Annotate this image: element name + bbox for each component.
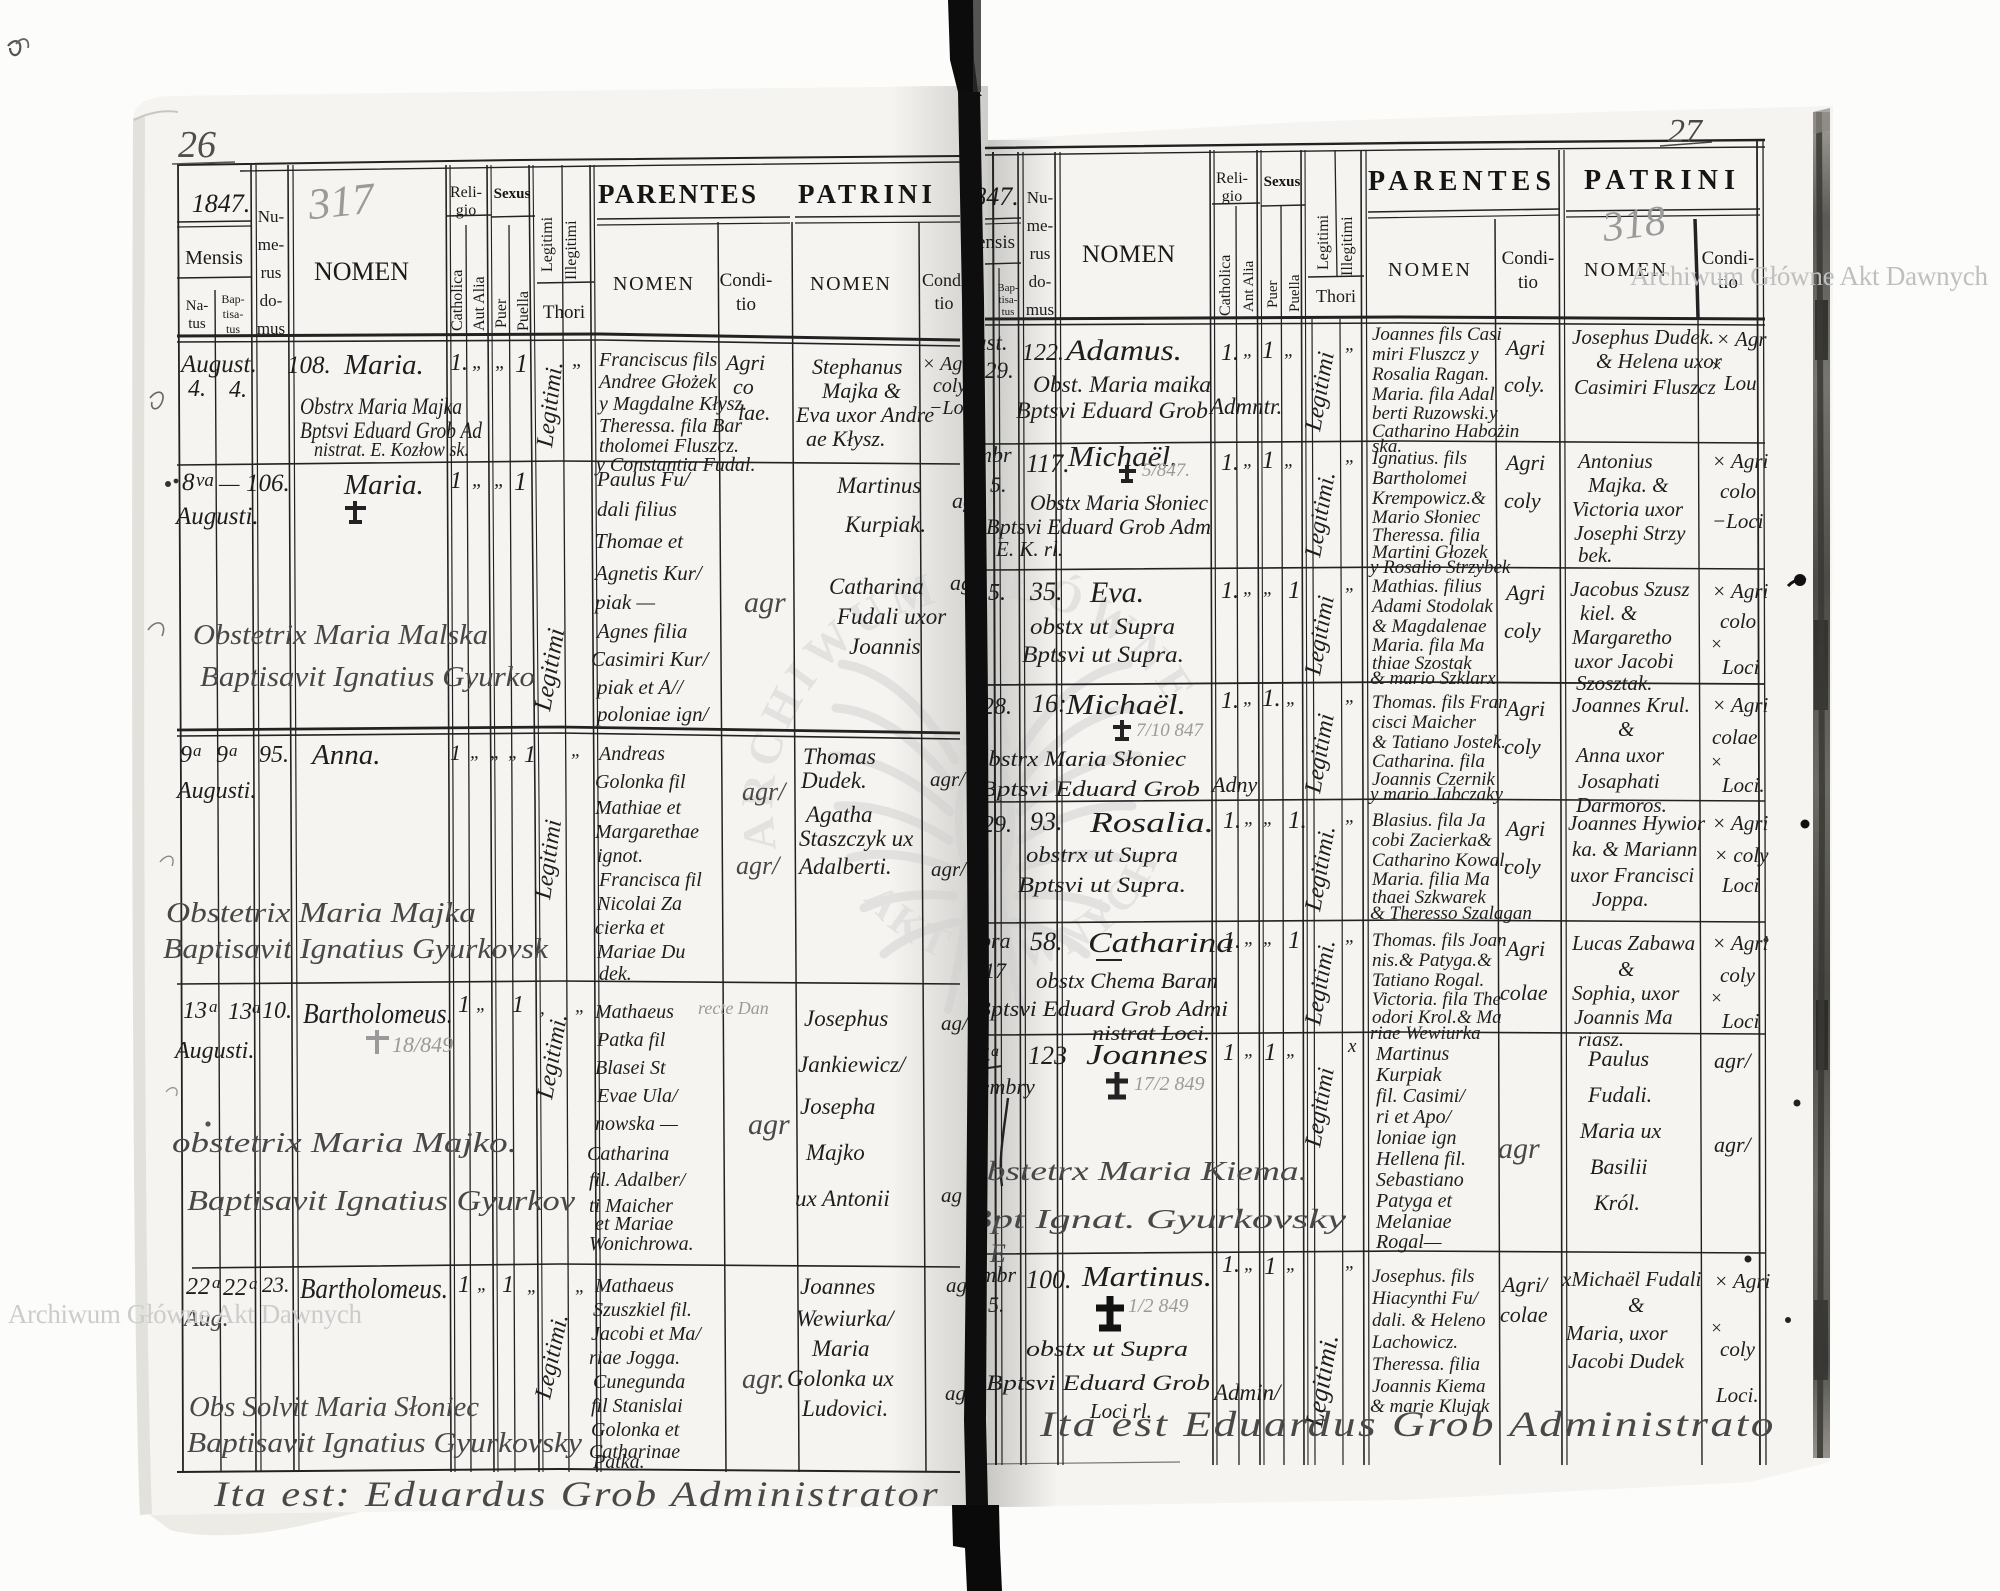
svg-text:„: „ [1244, 928, 1255, 949]
svg-text:4.: 4. [229, 377, 247, 403]
svg-text:„: „ [1286, 688, 1297, 709]
svg-text:Maria.: Maria. [343, 469, 424, 501]
svg-text:1: 1 [1264, 1039, 1277, 1066]
svg-text:a: a [229, 741, 238, 760]
svg-text:Agri: Agri [1504, 335, 1545, 360]
svg-text:„: „ [1263, 928, 1274, 949]
svg-text:Sexus: Sexus [1264, 174, 1301, 190]
svg-text:August.: August. [179, 351, 257, 378]
svg-text:Maria.: Maria. [343, 349, 424, 381]
svg-text:Obstx Maria Słoniec: Obstx Maria Słoniec [1030, 490, 1208, 515]
svg-text:agr: agr [748, 1108, 790, 1141]
svg-text:22: 22 [186, 1274, 210, 1300]
svg-text:obstx Chema Baran: obstx Chema Baran [1036, 968, 1218, 993]
svg-text:agr/: agr/ [736, 851, 782, 880]
svg-text:Bptsvi Eduard Grob: Bptsvi Eduard Grob [986, 1370, 1210, 1395]
svg-text:Martinus.: Martinus. [1081, 1261, 1212, 1293]
svg-text:agr.: agr. [742, 1364, 785, 1395]
svg-text:„: „ [1286, 1254, 1297, 1275]
svg-text:× coly: × coly [1714, 843, 1769, 867]
svg-text:Bptsvi Eduard Grob: Bptsvi Eduard Grob [980, 776, 1200, 801]
svg-text:„: „ [472, 351, 483, 373]
svg-text:„: „ [1263, 808, 1274, 829]
svg-text:58.: 58. [1030, 927, 1063, 956]
svg-text:„: „ [470, 742, 481, 763]
svg-text:„: „ [494, 469, 505, 491]
svg-text:1: 1 [1288, 927, 1301, 954]
svg-text:coly: coly [1504, 488, 1541, 513]
svg-text:Obst. Maria maika: Obst. Maria maika [1033, 372, 1211, 397]
svg-text:obstetrx Maria Kiema.: obstetrx Maria Kiema. [968, 1156, 1308, 1186]
svg-text:NOMEN: NOMEN [810, 273, 896, 295]
svg-text:NOMEN: NOMEN [314, 257, 418, 286]
svg-text:NOMEN: NOMEN [613, 273, 699, 295]
svg-text:Loci: Loci [1721, 655, 1760, 679]
svg-text:Catholica: Catholica [449, 270, 466, 331]
svg-text:108.: 108. [287, 352, 331, 379]
svg-text:Legitimi: Legitimi [539, 216, 556, 272]
svg-text:„: „ [527, 1276, 538, 1297]
svg-text:×: × [1710, 988, 1723, 1009]
svg-text:„: „ [472, 469, 483, 491]
svg-text:Adny: Adny [1210, 772, 1257, 797]
svg-text:1.: 1. [450, 350, 468, 376]
svg-text:rus: rus [261, 263, 282, 282]
svg-text:do-: do- [1029, 272, 1052, 291]
svg-text:26: 26 [178, 124, 216, 166]
svg-text:„: „ [1263, 578, 1274, 599]
svg-text:93.: 93. [1030, 807, 1063, 836]
svg-text:obstrx Maria Słoniec: obstrx Maria Słoniec [976, 746, 1186, 771]
svg-text:13: 13 [183, 998, 207, 1024]
svg-text:colae: colae [1500, 980, 1548, 1005]
svg-text:× Agri: × Agri [1712, 693, 1769, 717]
svg-text:PARENTES: PARENTES [1368, 166, 1558, 197]
svg-text:tio: tio [1518, 272, 1538, 293]
svg-text:„: „ [1243, 578, 1254, 599]
svg-text:coly: coly [1504, 734, 1541, 759]
svg-text:tus: tus [1002, 306, 1015, 318]
svg-text:4.: 4. [188, 376, 206, 402]
svg-text:x: x [1347, 1036, 1357, 1057]
svg-text:a: a [209, 997, 218, 1016]
svg-text:1.: 1. [1221, 340, 1239, 366]
svg-text:Eva.: Eva. [1089, 576, 1144, 609]
svg-text:Agri: Agri [1504, 580, 1545, 605]
svg-text:coly.: coly. [1504, 372, 1545, 397]
svg-text:9: 9 [216, 742, 228, 768]
svg-text:a: a [212, 1273, 221, 1292]
svg-text:Archiwum Główne Akt Dawnych: Archiwum Główne Akt Dawnych [8, 1299, 363, 1329]
svg-text:1: 1 [450, 740, 461, 765]
svg-text:agr/: agr/ [1714, 1132, 1753, 1157]
svg-text:1: 1 [1223, 1040, 1235, 1066]
svg-text:318: 318 [1599, 198, 1668, 251]
svg-text:Bptsvi ut Supra.: Bptsvi ut Supra. [1018, 872, 1186, 897]
svg-text:agr: agr [1498, 1132, 1540, 1165]
svg-text:„: „ [1345, 926, 1356, 947]
svg-text:tus: tus [226, 322, 240, 336]
svg-text:1: 1 [1262, 447, 1275, 474]
svg-text:ag/: ag/ [941, 1011, 970, 1035]
svg-text:1: 1 [524, 742, 536, 768]
svg-text:Archiwum Główne Akt Dawnych: Archiwum Główne Akt Dawnych [1630, 261, 1989, 291]
svg-text:×: × [1710, 356, 1723, 377]
svg-text:1: 1 [514, 467, 527, 496]
svg-text:Michaël.: Michaël. [1065, 689, 1186, 721]
svg-text:colo: colo [1720, 479, 1756, 503]
svg-text:16:: 16: [1032, 689, 1067, 718]
svg-text:9: 9 [180, 742, 192, 768]
svg-text:Augusti.: Augusti. [175, 778, 256, 804]
svg-text:Aut Alia: Aut Alia [471, 276, 488, 331]
svg-text:„: „ [1345, 446, 1356, 467]
svg-text:×: × [1710, 1318, 1723, 1339]
svg-text:coly: coly [1504, 854, 1541, 879]
svg-text:Catholica: Catholica [1217, 255, 1234, 316]
svg-text:tisa-: tisa- [999, 294, 1018, 306]
svg-text:1.: 1. [1223, 928, 1241, 954]
svg-text:recte Dan: recte Dan [698, 998, 769, 1018]
svg-text:Condi-: Condi- [720, 270, 773, 291]
svg-text:5/847.: 5/847. [1142, 460, 1190, 481]
svg-text:Legitimi: Legitimi [1315, 214, 1332, 270]
svg-text:1847.: 1847. [192, 189, 251, 218]
svg-text:mus: mus [1026, 300, 1054, 319]
svg-text:1: 1 [458, 992, 470, 1018]
svg-text:Augusti.: Augusti. [173, 1038, 254, 1064]
svg-text:× Agri: × Agri [1714, 1269, 1771, 1293]
svg-text:PATRINI: PATRINI [1584, 165, 1742, 196]
svg-text:Baptisavit Ignatius Gyurkov: Baptisavit Ignatius Gyurkov [187, 1186, 576, 1217]
svg-text:colae: colae [1500, 1302, 1548, 1327]
svg-text:1: 1 [458, 1272, 470, 1298]
svg-text:„: „ [1345, 806, 1356, 827]
svg-text:× Agri: × Agri [1712, 811, 1769, 835]
svg-text:22: 22 [223, 1275, 247, 1301]
svg-text:„: „ [575, 996, 586, 1017]
svg-text:tisa-: tisa- [223, 307, 244, 321]
svg-text:Baptisavit Ignatius Gyurkovsk: Baptisavit Ignatius Gyurkovsk [163, 934, 549, 965]
svg-text:8: 8 [182, 469, 195, 496]
svg-text:Loci: Loci [1721, 1009, 1760, 1033]
svg-text:Agri: Agri [1504, 816, 1545, 841]
svg-text:Ita est: Eduardus Grob Adm: Ita est: Eduardus Grob Administrator [213, 1474, 940, 1514]
svg-text:agr/: agr/ [931, 857, 968, 881]
svg-text:NOMEN: NOMEN [1388, 259, 1476, 281]
svg-text:Joannes: Joannes [1086, 1039, 1208, 1071]
svg-text:Puella: Puella [515, 291, 532, 331]
svg-text:tio: tio [934, 293, 953, 313]
svg-text:agr/: agr/ [1714, 1048, 1753, 1073]
svg-text:tus: tus [188, 316, 206, 332]
svg-text:colae: colae [1712, 725, 1757, 749]
svg-text:gio: gio [1222, 188, 1242, 205]
svg-text:Anna.: Anna. [310, 739, 380, 771]
svg-text:„: „ [1284, 450, 1295, 471]
svg-text:Condi-: Condi- [1502, 248, 1555, 269]
svg-text:va: va [196, 470, 214, 491]
svg-text:„: „ [571, 740, 582, 761]
svg-text:Condi: Condi [922, 270, 966, 290]
svg-text:„: „ [1244, 808, 1255, 829]
svg-text:1/2 849: 1/2 849 [1128, 1295, 1189, 1317]
svg-text:Ita est Eduardus Grob Ad: Ita est Eduardus Grob Administrato [1039, 1404, 1776, 1444]
svg-text:1.: 1. [1221, 688, 1239, 714]
svg-text:Agri: Agri [1504, 450, 1545, 475]
svg-text:× Agr: × Agr [1716, 327, 1767, 351]
svg-text:Loci.: Loci. [1721, 773, 1765, 797]
svg-text:coly: coly [1504, 618, 1541, 643]
svg-text:Bartholomeus.: Bartholomeus. [303, 999, 453, 1030]
svg-text:Augusti.: Augusti. [174, 503, 259, 530]
svg-text:Bap-: Bap- [997, 282, 1019, 294]
svg-text:„: „ [575, 1276, 586, 1297]
svg-text:×: × [1710, 634, 1723, 655]
svg-text:„: „ [1345, 574, 1356, 595]
svg-text:Bptsvi ut Supra.: Bptsvi ut Supra. [1022, 642, 1184, 667]
svg-text:obstx ut Supra: obstx ut Supra [1026, 1336, 1188, 1361]
svg-text:Obstetrix Maria Malska: Obstetrix Maria Malska [193, 619, 488, 651]
svg-text:„: „ [1345, 686, 1356, 707]
svg-text:Loci: Loci [1721, 873, 1760, 897]
svg-text:„: „ [1345, 334, 1356, 355]
svg-text:1.: 1. [1221, 450, 1239, 476]
svg-text:1.: 1. [1288, 807, 1307, 834]
svg-text:„: „ [1244, 1040, 1255, 1061]
svg-text:obstx ut Supra: obstx ut Supra [1030, 614, 1175, 639]
svg-text:Agri/: Agri/ [1500, 1272, 1549, 1297]
svg-text:me-: me- [1027, 216, 1054, 235]
svg-text:1.: 1. [1222, 1252, 1240, 1278]
svg-text:obstetrix Maria Majko.: obstetrix Maria Majko. [172, 1128, 517, 1159]
svg-text:1: 1 [1288, 577, 1301, 604]
svg-text:Baptisavit Ignatius Gyurko: Baptisavit Ignatius Gyurko [200, 661, 535, 693]
svg-text:PATRINI: PATRINI [798, 179, 938, 209]
svg-text:Agri: Agri [1504, 696, 1545, 721]
svg-text:„: „ [508, 742, 519, 763]
svg-text:17/2 849: 17/2 849 [1134, 1073, 1205, 1095]
svg-text:Mensis: Mensis [185, 247, 243, 269]
svg-text:do-: do- [260, 291, 283, 310]
svg-text:„: „ [572, 349, 583, 371]
svg-text:95.: 95. [259, 742, 289, 768]
svg-text:Thori: Thori [1316, 286, 1356, 306]
svg-text:100.: 100. [1026, 1265, 1072, 1294]
svg-text:29.: 29. [985, 358, 1014, 383]
svg-text:1: 1 [515, 349, 528, 378]
svg-text:1: 1 [1264, 1253, 1277, 1280]
svg-text:„: „ [1286, 1040, 1297, 1061]
svg-text:a: a [193, 741, 202, 760]
svg-text:Obs Solvit Maria Słoniec: Obs Solvit Maria Słoniec [189, 1392, 480, 1423]
svg-text:Obstrx Maria Majka: Obstrx Maria Majka [300, 394, 462, 419]
svg-text:1.: 1. [1221, 578, 1239, 604]
svg-text:tio: tio [736, 294, 756, 315]
svg-text:18/849: 18/849 [392, 1032, 453, 1057]
svg-text:NOMEN: NOMEN [1082, 241, 1184, 268]
svg-text:„: „ [477, 1274, 488, 1295]
svg-text:Sexus: Sexus [494, 186, 531, 202]
svg-text:Nu-: Nu- [258, 207, 285, 226]
svg-text:Thori: Thori [543, 302, 585, 323]
svg-text:Mathias. filiusAdami Stodolak&: Mathias. filiusAdami Stodolak& Magdalena… [1370, 576, 1496, 689]
svg-text:117.: 117. [1026, 449, 1070, 478]
svg-text:„: „ [1345, 1252, 1356, 1273]
svg-text:nistrat. E. Kozłow sk.: nistrat. E. Kozłow sk. [314, 439, 469, 461]
svg-text:„: „ [1244, 1254, 1255, 1275]
svg-text:—: — [218, 471, 240, 496]
svg-text:coly: coly [1720, 1337, 1756, 1361]
svg-text:1: 1 [450, 468, 462, 494]
svg-text:Ant Alia: Ant Alia [1241, 260, 1257, 312]
svg-text:Bptsvi Eduard Grob Admi: Bptsvi Eduard Grob Admi [976, 996, 1228, 1021]
svg-text:Na-: Na- [186, 298, 209, 314]
svg-text:PARENTES: PARENTES [598, 179, 762, 209]
svg-text:„: „ [1284, 340, 1295, 361]
svg-text:Admntr.: Admntr. [1208, 394, 1282, 419]
svg-text:Obstetrix Maria Majka: Obstetrix Maria Majka [166, 898, 476, 929]
svg-text:Baptisavit Ignatius Gyurkovsky: Baptisavit Ignatius Gyurkovsky [187, 1428, 583, 1459]
svg-text:Thomas. fils Francisci Maicher: Thomas. fils Francisci Maicher& Tatiano … [1368, 692, 1508, 805]
svg-text:1: 1 [512, 992, 524, 1018]
svg-text:Bptsvi Eduard Grob Adm: Bptsvi Eduard Grob Adm [986, 514, 1211, 539]
svg-text:Bap-: Bap- [221, 292, 244, 306]
svg-text:×: × [1710, 752, 1723, 773]
svg-text:Agri: Agri [1504, 936, 1545, 961]
svg-text:1.: 1. [1223, 808, 1241, 834]
svg-text:colo: colo [1720, 609, 1756, 633]
svg-text:Illegitimi: Illegitimi [563, 220, 580, 280]
svg-text:Puer: Puer [1265, 281, 1281, 309]
svg-text:Bpt Ignat. Gyurkovsky: Bpt Ignat. Gyurkovsky [966, 1204, 1346, 1234]
svg-text:35.: 35. [1029, 577, 1063, 606]
svg-text:Admin/: Admin/ [1212, 1380, 1283, 1405]
svg-text:rus: rus [1030, 244, 1051, 263]
svg-text:13: 13 [228, 999, 252, 1025]
svg-text:Lou: Lou [1723, 371, 1757, 395]
svg-text:„: „ [1243, 450, 1254, 471]
svg-text:,: , [540, 998, 545, 1019]
svg-text:ag: ag [941, 1183, 962, 1207]
svg-text:„: „ [490, 742, 501, 763]
svg-text:mus: mus [257, 319, 285, 338]
svg-text:Nu-: Nu- [1027, 188, 1054, 207]
svg-text:7/10 847: 7/10 847 [1136, 720, 1205, 741]
svg-text:Bptsvi Eduard Grob: Bptsvi Eduard Grob [1016, 398, 1208, 423]
svg-text:gio: gio [456, 202, 476, 219]
svg-text:a: a [991, 1043, 999, 1060]
svg-text:Adamus.: Adamus. [1064, 334, 1182, 367]
svg-text:Illegitimi: Illegitimi [1339, 216, 1356, 276]
svg-text:a: a [249, 1274, 258, 1293]
svg-text:„: „ [1243, 340, 1254, 361]
svg-text:Reli-: Reli- [1216, 170, 1248, 187]
svg-text:„: „ [1243, 688, 1254, 709]
svg-text:−Loci: −Loci [1712, 509, 1764, 533]
svg-text:× Agri: × Agri [1712, 931, 1769, 955]
svg-text:122.: 122. [1022, 340, 1064, 366]
svg-text:me-: me- [258, 235, 285, 254]
svg-text:5.: 5. [988, 1292, 1005, 1317]
svg-text:E. K. rl.: E. K. rl. [995, 537, 1063, 561]
svg-text:317: 317 [305, 173, 379, 229]
svg-text:obstrx ut Supra: obstrx ut Supra [1026, 842, 1178, 867]
svg-text:106.: 106. [246, 470, 290, 497]
svg-text:Puella: Puella [1287, 274, 1303, 312]
svg-text:coly: coly [1720, 963, 1756, 987]
svg-text:1: 1 [502, 1272, 514, 1298]
svg-text:a: a [252, 998, 261, 1017]
svg-text:„: „ [495, 351, 506, 373]
svg-text:× Agri: × Agri [1712, 449, 1769, 473]
svg-text:Rosalia.: Rosalia. [1089, 807, 1214, 839]
svg-text:10.: 10. [262, 998, 292, 1024]
svg-text:× Agri: × Agri [1712, 579, 1769, 603]
svg-text:Puer: Puer [493, 298, 510, 328]
svg-text:5.: 5. [990, 472, 1007, 497]
svg-text:agr: agr [744, 586, 786, 619]
svg-text:Catharina: Catharina [1088, 927, 1234, 959]
svg-text:123: 123 [1028, 1041, 1067, 1070]
svg-text:„: „ [476, 994, 487, 1015]
svg-text:1: 1 [1262, 337, 1275, 364]
svg-text:1.: 1. [1262, 685, 1281, 712]
svg-text:23.: 23. [262, 1272, 290, 1297]
svg-text:agr/: agr/ [742, 777, 788, 806]
svg-text:5.: 5. [988, 580, 1006, 606]
svg-text:Reli-: Reli- [450, 184, 482, 201]
svg-text:agr/: agr/ [930, 767, 967, 791]
